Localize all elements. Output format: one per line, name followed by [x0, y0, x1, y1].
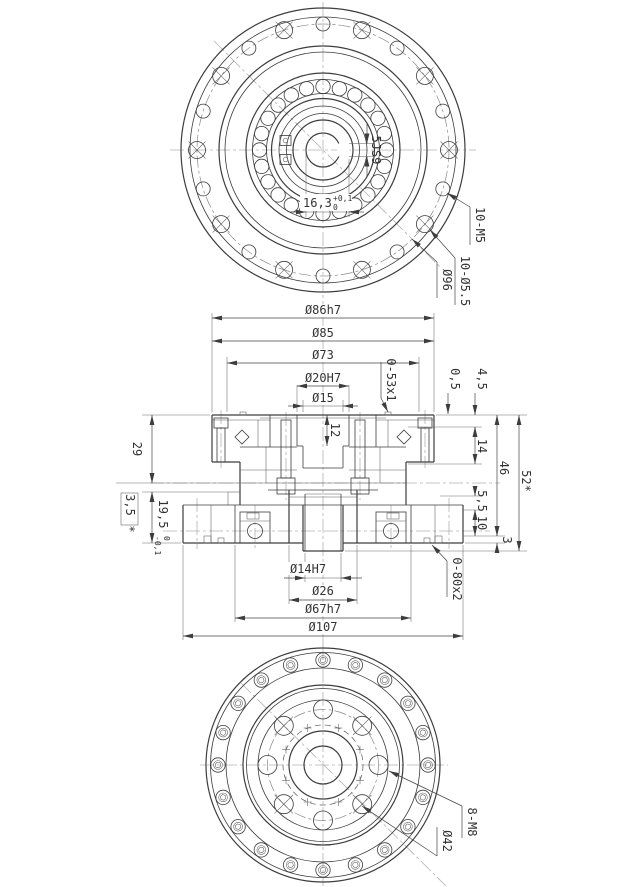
label-clearance-holes: 10-Ø5.5: [458, 256, 472, 307]
circlip-lug-bottom: [280, 155, 291, 165]
dim-height-29: 29: [130, 442, 144, 456]
dim-ref-35: 3,5: [123, 494, 137, 516]
dim-dia-26: Ø26: [312, 584, 334, 598]
top-view-diagonal-centerline: [214, 41, 440, 267]
cross-roller-right: [397, 430, 411, 444]
dim-depth-14: 14: [475, 439, 489, 453]
dim-keyway-depth-tol-upper: +0,1: [333, 194, 352, 203]
dim-dia-14h7: Ø14H7: [290, 562, 326, 576]
circlip-hole-bottom: [283, 157, 288, 162]
circlip-hole-top: [283, 138, 288, 143]
drawing-canvas: 5JS9 16,3 +0,1 0 10-M5 10-Ø5.5 Ø96: [0, 0, 631, 887]
dim-dia-15: Ø15: [312, 391, 334, 405]
keyway-slot: [337, 144, 350, 157]
dim-keyway-depth: 16,3: [303, 196, 332, 210]
dim-ref-35-star: *: [123, 525, 137, 532]
dim-step-05: 0,5: [448, 368, 462, 390]
dim-height-52: 52*: [519, 470, 533, 492]
dim-height-46: 46: [497, 461, 511, 475]
label-oring-top: 0-53x1: [384, 358, 398, 401]
dim-step-45: 4,5: [475, 368, 489, 390]
dim-step-10: 10: [475, 516, 489, 530]
circlip-lug-top: [280, 136, 291, 146]
dim-dia-107: Ø107: [309, 620, 338, 634]
label-thread-holes: 10-M5: [473, 207, 487, 243]
oring-groove-bottom-left: [218, 538, 224, 543]
dim-dia-20h7: Ø20H7: [305, 371, 341, 385]
label-bolt-circle-42: Ø42: [440, 830, 454, 852]
dim-depth-195-tol-lower: -0,1: [153, 536, 162, 555]
section-view: Ø86h7 Ø85 Ø73 Ø20H7 Ø15 0-53x1 0,5 4,5 1…: [116, 303, 533, 660]
dim-depth-12: 12: [328, 423, 342, 437]
bottom-view: 8-M8 Ø42: [200, 646, 479, 886]
dim-dia-86h7: Ø86h7: [305, 303, 341, 317]
dim-keyway-depth-tol-lower: 0: [333, 203, 338, 212]
dim-step-3: 3: [500, 536, 514, 543]
cross-roller-left: [235, 430, 249, 444]
dim-dia-73: Ø73: [312, 348, 334, 362]
dim-depth-195-tol-upper: 0: [162, 536, 171, 541]
engineering-drawing-page: 5JS9 16,3 +0,1 0 10-M5 10-Ø5.5 Ø96: [0, 0, 631, 887]
dim-depth-195: 19,5: [156, 500, 170, 529]
label-thread-holes-m8: 8-M8: [465, 808, 479, 837]
dim-step-55: 5,5: [475, 490, 489, 512]
label-oring-bottom: 0-80x2: [450, 557, 464, 600]
label-bolt-circle: Ø96: [440, 269, 454, 291]
dim-dia-67h7: Ø67h7: [305, 602, 341, 616]
dim-keyway-width: 5JS9: [369, 136, 383, 165]
oring-groove-bottom-right: [424, 538, 430, 543]
dim-dia-85: Ø85: [312, 326, 334, 340]
top-view: 5JS9 16,3 +0,1 0 10-M5 10-Ø5.5 Ø96: [170, 2, 487, 308]
